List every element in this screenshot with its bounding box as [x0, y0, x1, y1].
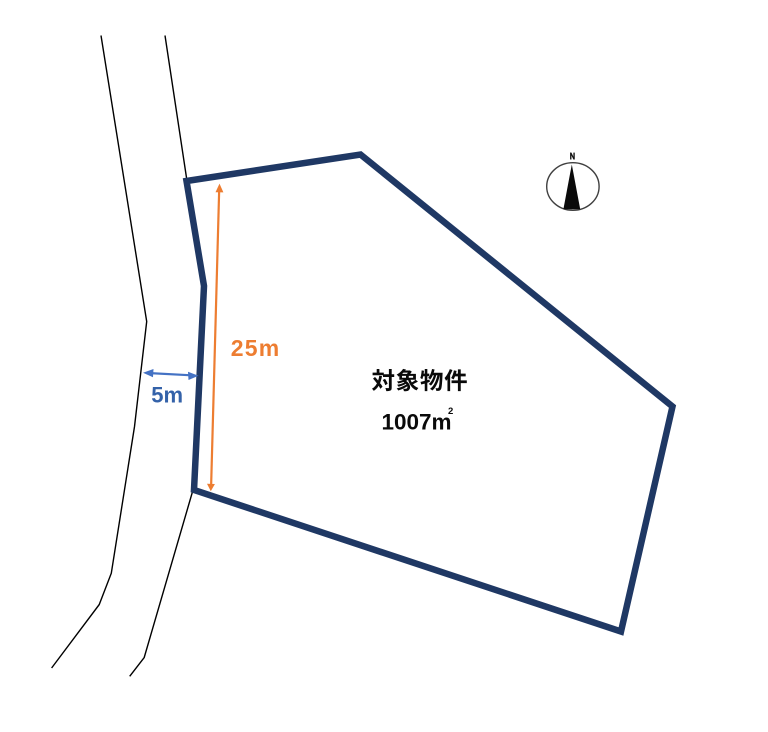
- svg-text:5m: 5m: [151, 383, 183, 408]
- svg-text:1007m: 1007m: [382, 410, 452, 435]
- svg-text:2: 2: [448, 406, 453, 417]
- svg-text:25m: 25m: [231, 335, 281, 361]
